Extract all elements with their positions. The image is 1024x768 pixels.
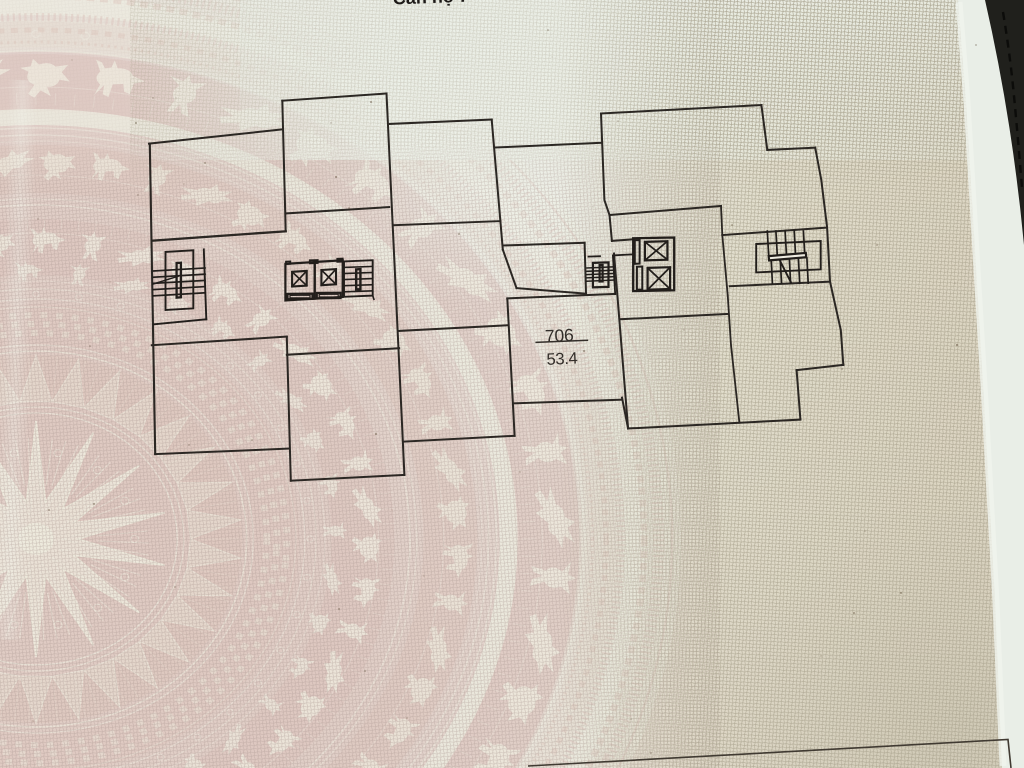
- svg-text:706: 706: [544, 325, 573, 346]
- svg-text:53.4: 53.4: [546, 350, 578, 369]
